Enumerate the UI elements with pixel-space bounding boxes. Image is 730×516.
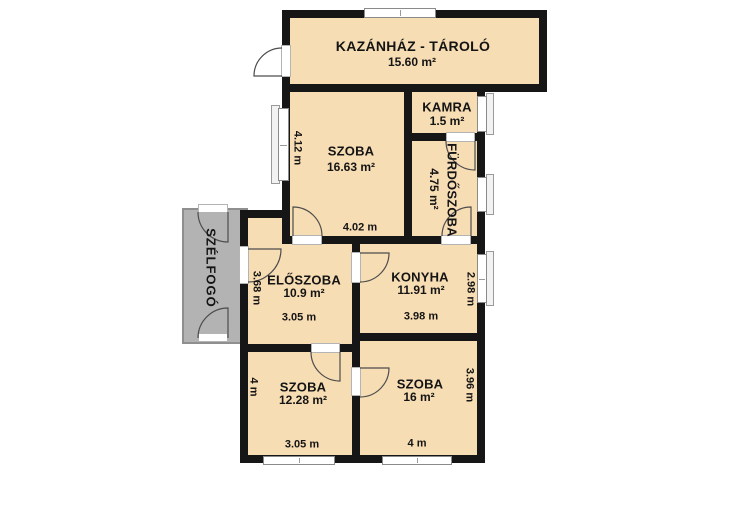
room-label-kamra: KAMRA bbox=[422, 101, 471, 114]
room-label-kazanhaz: KAZÁNHÁZ - TÁROLÓ bbox=[336, 39, 490, 53]
door-arc-szobak bbox=[360, 368, 389, 397]
room-area-szoba-nagy: 16.63 m² bbox=[327, 161, 375, 173]
dim-szoba-bal-left: 4 m bbox=[248, 378, 259, 397]
room-label-konyha: KONYHA bbox=[391, 271, 449, 284]
dim-konyha-right: 2.98 m bbox=[465, 272, 476, 306]
door-arcs bbox=[0, 0, 730, 516]
room-area-kazanhaz: 15.60 m² bbox=[388, 56, 436, 68]
dim-eloszoba-left: 3.68 m bbox=[251, 271, 262, 305]
room-area-eloszoba: 10.9 m² bbox=[283, 287, 324, 299]
door-arc-szoba-nagy bbox=[293, 207, 322, 236]
room-label-szelfogo: SZÉLFOGÓ bbox=[205, 228, 218, 308]
floor-plan: KAZÁNHÁZ - TÁROLÓ 15.60 m² KAMRA 1.5 m² … bbox=[0, 0, 730, 516]
room-label-szoba-nagy: SZOBA bbox=[328, 145, 375, 158]
room-area-konyha: 11.91 m² bbox=[397, 284, 444, 296]
room-area-furdoszoba: 4.75 m² bbox=[428, 168, 440, 209]
dim-szoba-nagy-bottom: 4.02 m bbox=[343, 223, 377, 234]
room-area-kamra: 1.5 m² bbox=[430, 115, 465, 127]
room-area-szoba-bal: 12.28 m² bbox=[279, 394, 327, 406]
room-label-furdoszoba: FÜRDŐSZOBA bbox=[446, 143, 459, 237]
room-label-szoba-jobb: SZOBA bbox=[397, 378, 444, 391]
door-arc-szelfogo-bottom bbox=[198, 308, 228, 338]
dim-szoba-jobb-right: 3.96 m bbox=[464, 368, 475, 402]
door-arc-konyha bbox=[360, 253, 389, 282]
dim-szoba-nagy-left: 4.12 m bbox=[292, 131, 303, 165]
dim-eloszoba-bottom: 3.05 m bbox=[282, 313, 316, 324]
room-label-eloszoba: ELŐSZOBA bbox=[267, 274, 341, 287]
dim-konyha-bottom: 3.98 m bbox=[404, 312, 438, 323]
dim-szoba-jobb-bottom: 4 m bbox=[408, 439, 427, 450]
room-area-szoba-jobb: 16 m² bbox=[403, 391, 434, 403]
room-label-szoba-bal: SZOBA bbox=[280, 381, 327, 394]
door-arc-kazanhaz-entry bbox=[254, 48, 282, 76]
door-arc-szoba-bal bbox=[311, 352, 340, 381]
dim-szoba-bal-bottom: 3.05 m bbox=[285, 440, 319, 451]
